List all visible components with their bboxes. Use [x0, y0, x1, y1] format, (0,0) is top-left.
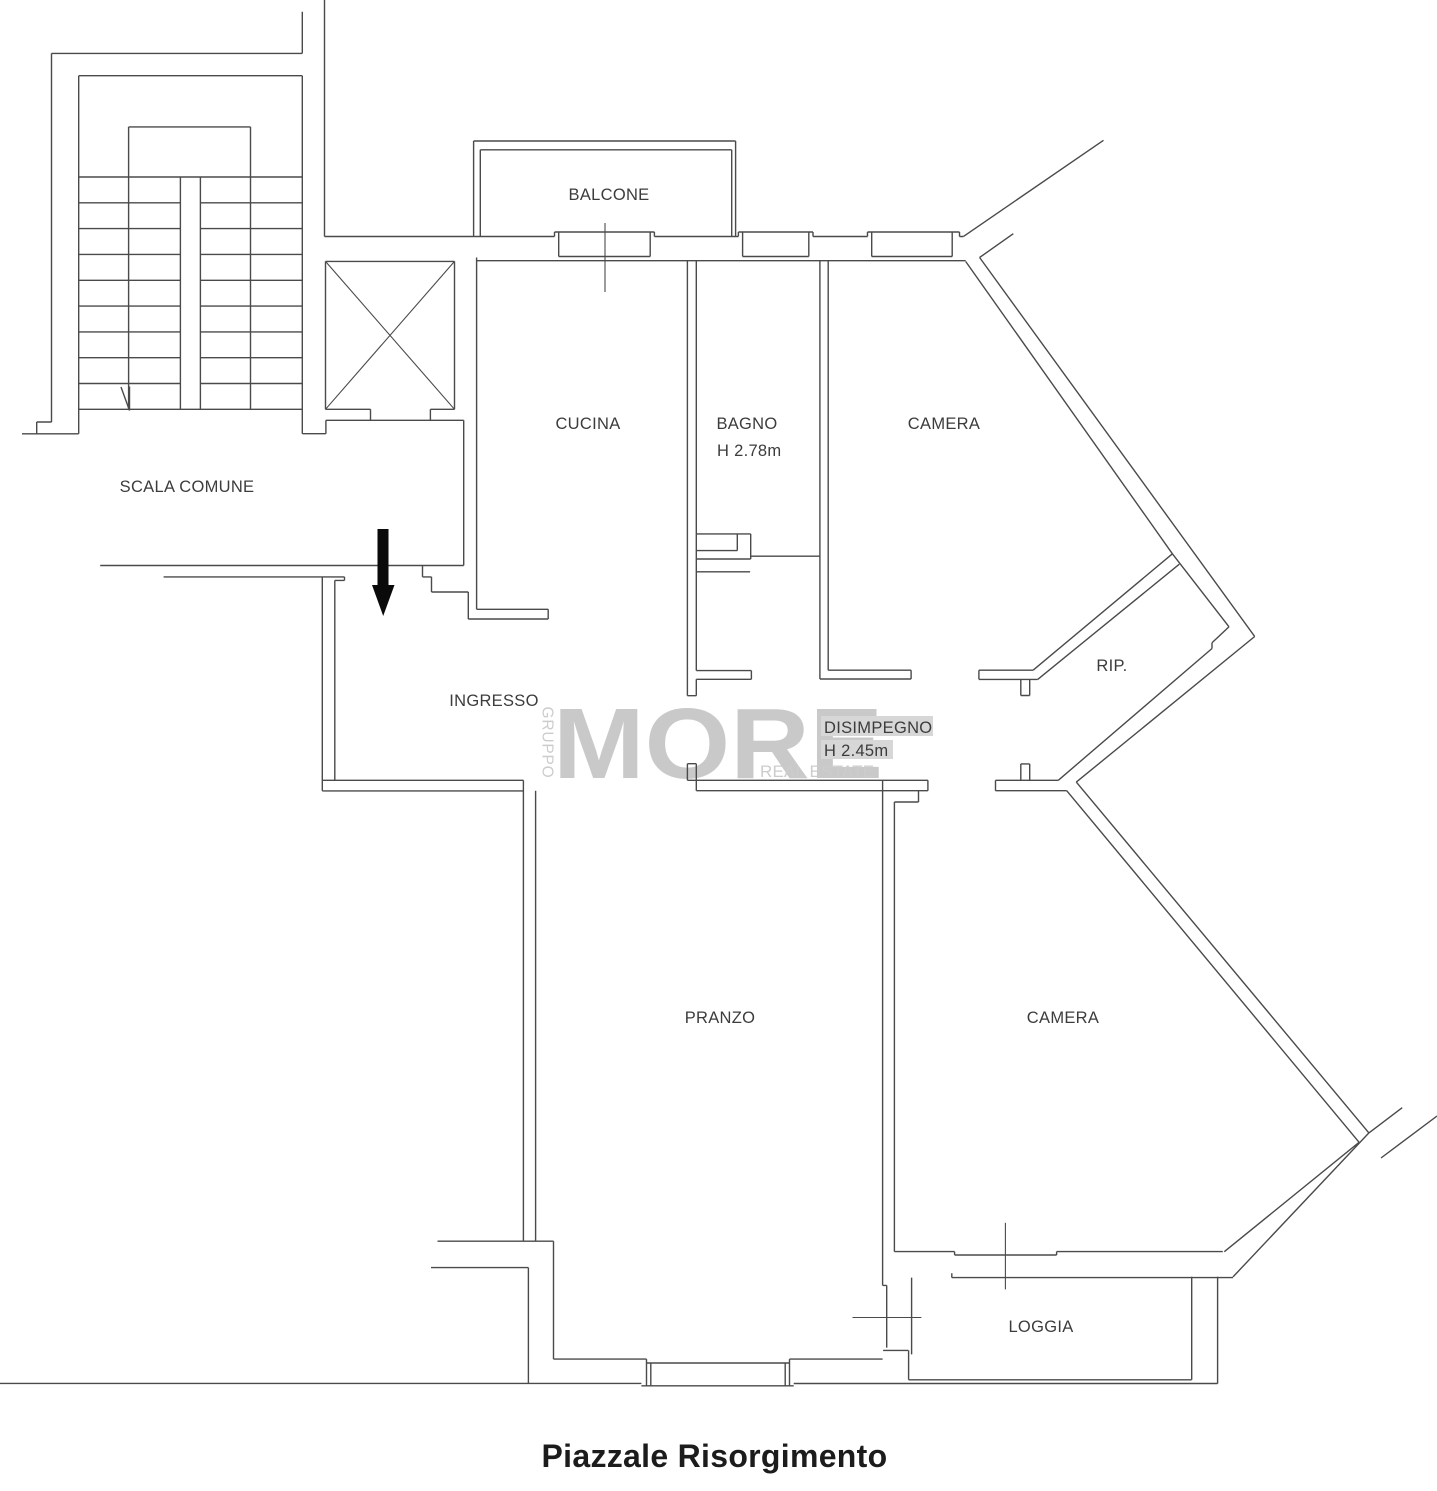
svg-text:BALCONE: BALCONE [569, 186, 650, 204]
svg-text:DISIMPEGNO: DISIMPEGNO [824, 719, 932, 737]
svg-text:LOGGIA: LOGGIA [1008, 1318, 1073, 1336]
svg-text:PRANZO: PRANZO [685, 1009, 756, 1027]
svg-text:H 2.45m: H 2.45m [824, 742, 888, 760]
svg-text:SCALA COMUNE: SCALA COMUNE [120, 478, 255, 496]
svg-text:BAGNO: BAGNO [716, 415, 777, 433]
svg-text:H 2.78m: H 2.78m [717, 442, 781, 460]
svg-text:INGRESSO: INGRESSO [449, 692, 539, 710]
svg-text:GRUPPO: GRUPPO [539, 707, 556, 779]
svg-text:CAMERA: CAMERA [908, 415, 980, 433]
svg-text:Piazzale Risorgimento: Piazzale Risorgimento [542, 1438, 888, 1474]
svg-text:REAL ESTATE: REAL ESTATE [760, 762, 874, 781]
svg-text:RIP.: RIP. [1096, 657, 1127, 675]
svg-text:CAMERA: CAMERA [1027, 1009, 1099, 1027]
svg-text:CUCINA: CUCINA [555, 415, 620, 433]
